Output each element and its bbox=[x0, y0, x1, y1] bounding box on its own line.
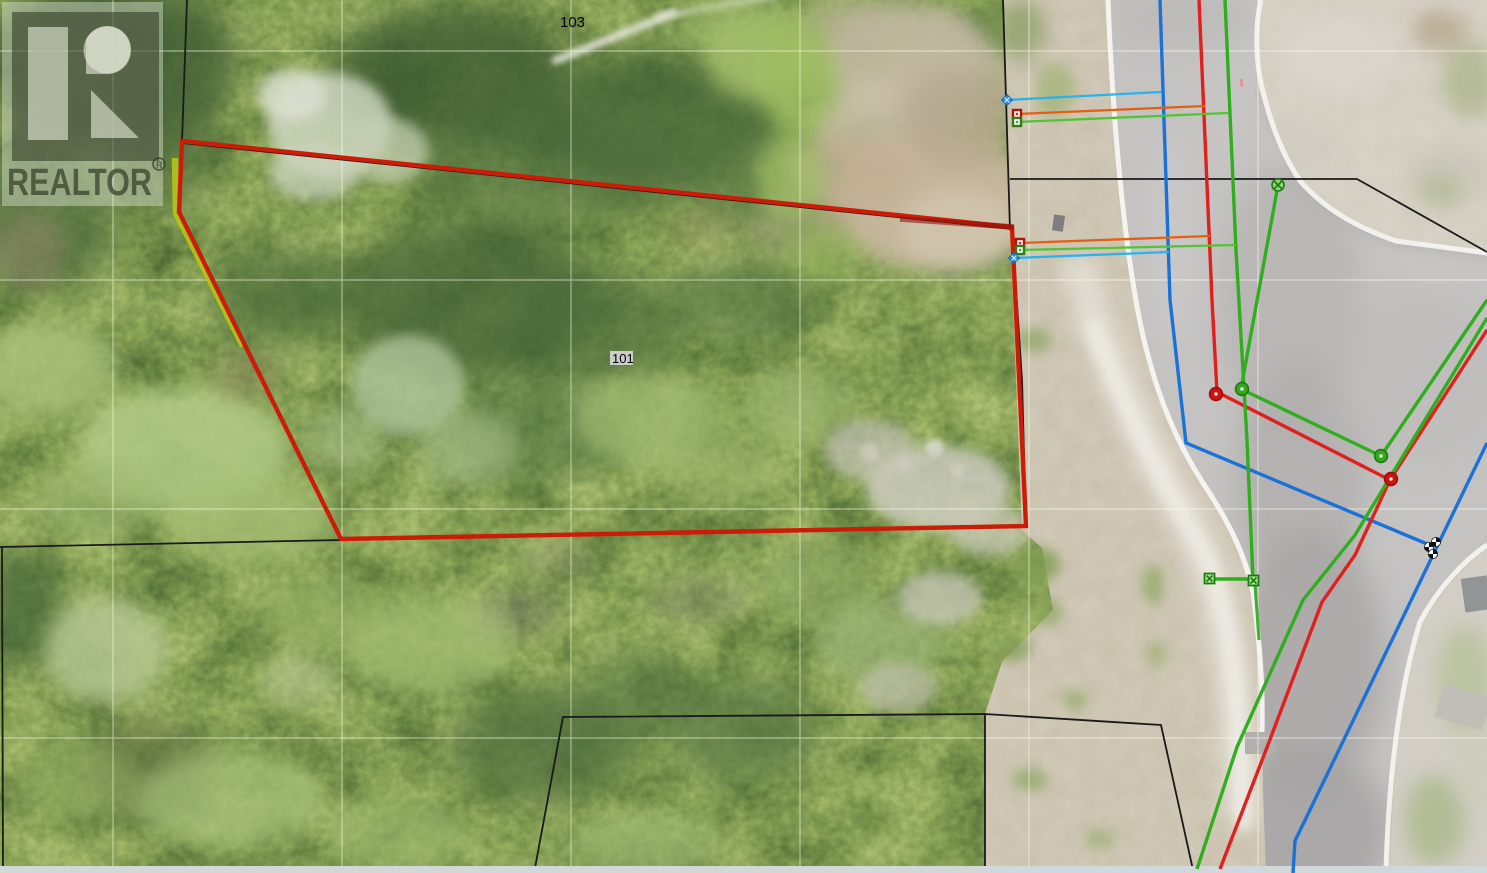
svg-text:REALTOR: REALTOR bbox=[7, 162, 152, 204]
svg-text:101: 101 bbox=[612, 351, 634, 366]
svg-text:R: R bbox=[156, 160, 163, 170]
svg-text:103: 103 bbox=[560, 14, 585, 31]
